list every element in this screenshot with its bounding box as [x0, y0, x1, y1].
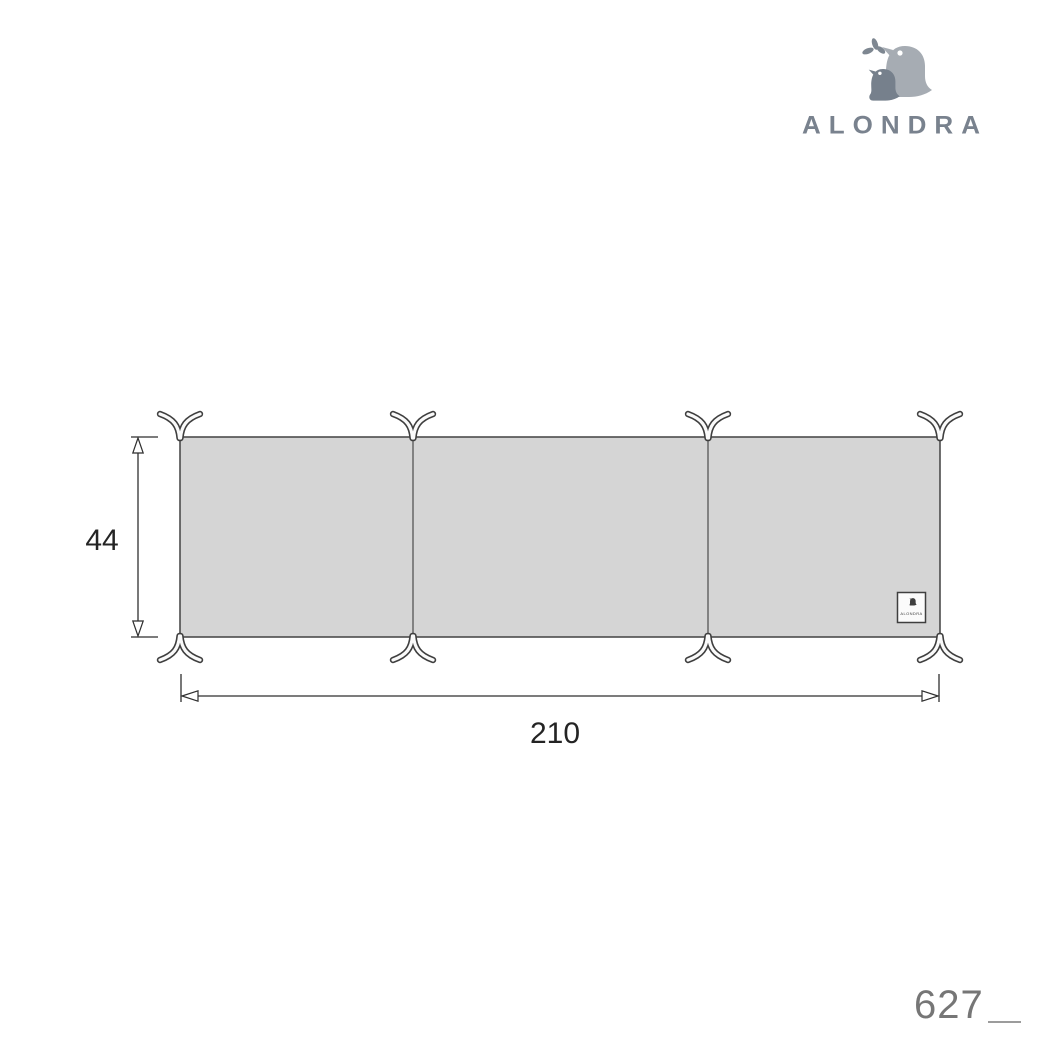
- arrow-left-icon: [182, 691, 198, 701]
- arrow-down-icon: [133, 621, 143, 636]
- tie-strap: [160, 636, 200, 660]
- width-dimension: 210: [181, 674, 939, 750]
- tie-straps-bottom: [160, 636, 960, 660]
- height-dimension: 44: [85, 437, 158, 637]
- bumper-body: [180, 437, 940, 637]
- tie-strap: [920, 636, 960, 660]
- tie-strap: [920, 414, 960, 438]
- height-value: 44: [85, 524, 118, 557]
- label-tag-text: ALONDRA: [900, 611, 922, 616]
- reference-number: 627: [914, 985, 1021, 1025]
- tie-strap: [688, 636, 728, 660]
- tie-strap: [160, 414, 200, 438]
- arrow-up-icon: [133, 438, 143, 453]
- arrow-right-icon: [922, 691, 938, 701]
- bumper-dimension-diagram: ALONDRA 44 210: [0, 0, 1051, 1051]
- reference-number-value: 627: [914, 985, 984, 1025]
- tie-straps-top: [160, 414, 960, 438]
- width-value: 210: [530, 717, 580, 750]
- fabric-label-tag: ALONDRA: [898, 593, 926, 623]
- tie-strap: [688, 414, 728, 438]
- label-tag-box: [898, 593, 926, 623]
- tie-strap: [393, 636, 433, 660]
- page: ALONDRA: [0, 0, 1051, 1051]
- tie-strap: [393, 414, 433, 438]
- reference-underscore: [988, 1021, 1021, 1023]
- bumper-panels: [180, 437, 940, 637]
